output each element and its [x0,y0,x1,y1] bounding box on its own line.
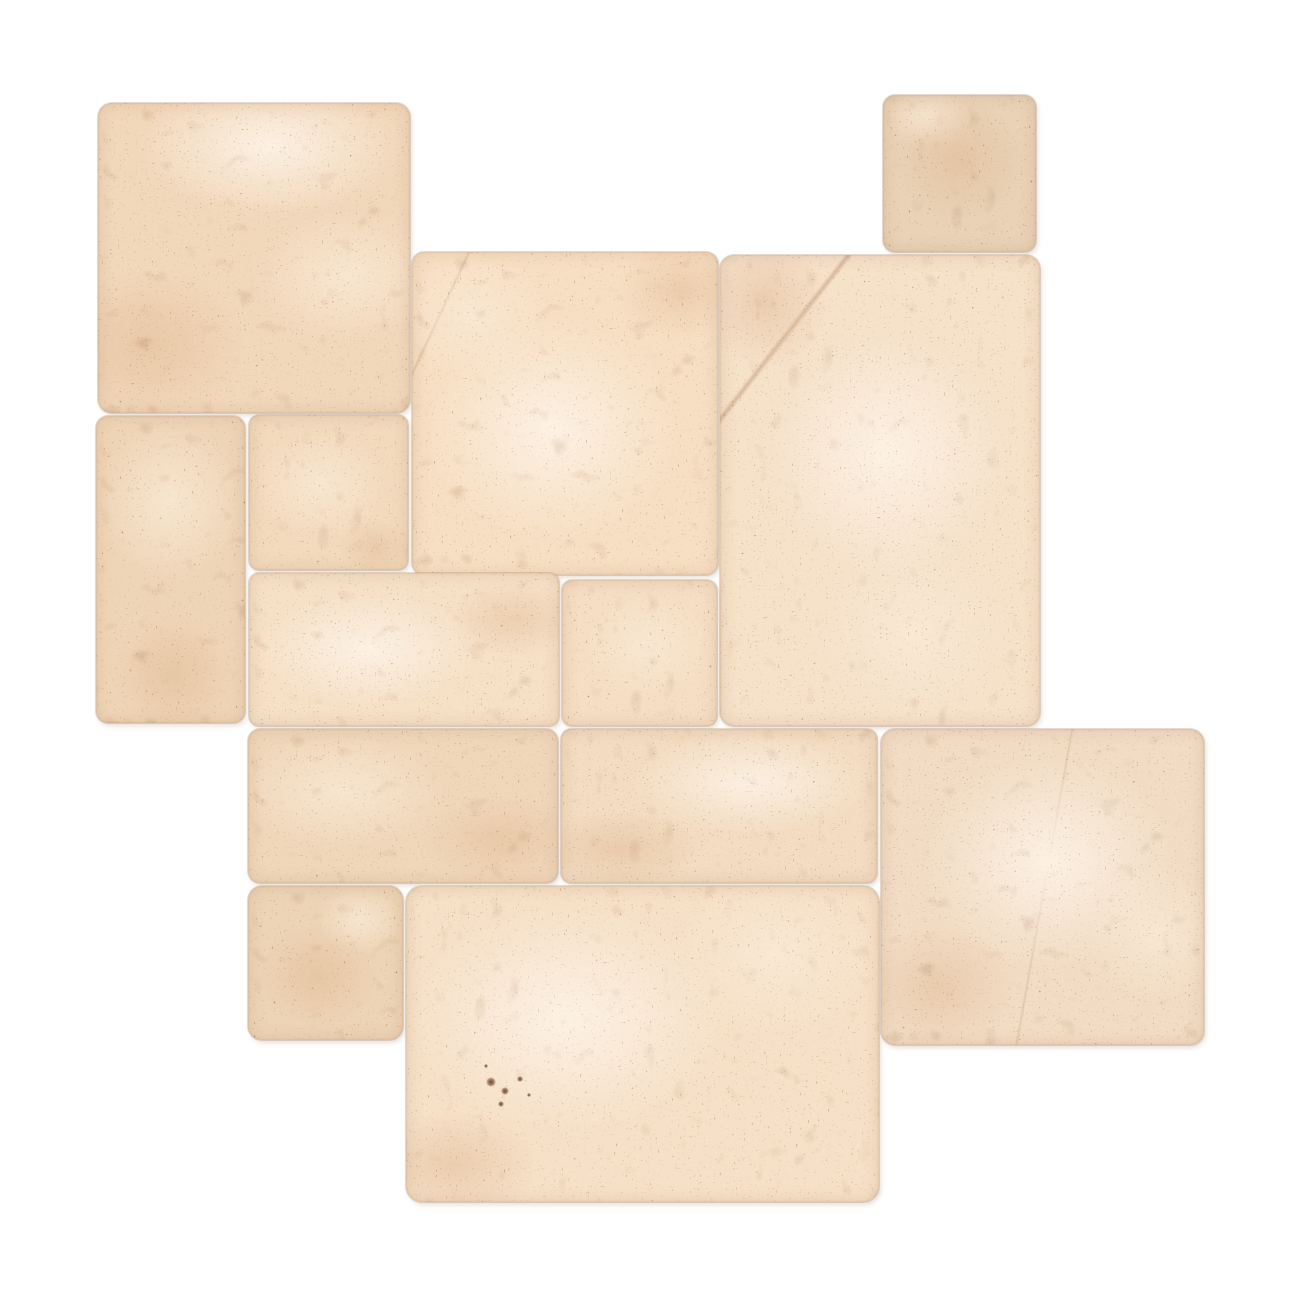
travertine-tile-8x8-center [562,580,717,726]
stone-grain-texture [248,886,403,1040]
stone-grain-texture [561,729,877,883]
travertine-tile-16x8-middle [249,573,559,726]
travertine-tile-8x8-top-right [883,95,1036,252]
travertine-tile-24x16-bottom [406,886,879,1202]
stone-pit [501,1087,509,1095]
stone-grain-texture [96,416,245,723]
stone-grain-texture [248,729,558,883]
tile-pattern-canvas [0,0,1300,1300]
stone-grain-texture [881,729,1204,1045]
travertine-tile-8x16-left [96,416,245,723]
stone-grain-texture [720,255,1040,726]
travertine-tile-16x8-lower-middle [561,729,877,883]
stone-grain-texture [883,95,1036,252]
stone-grain-texture [98,103,410,413]
travertine-tile-16x24-right [720,255,1040,726]
stone-pit [484,1064,488,1068]
travertine-tile-16x8-lower-left [248,729,558,883]
travertine-tile-16x16-top-left [98,103,410,413]
stone-grain-texture [406,886,879,1202]
travertine-tile-16x16-bottom-right [881,729,1204,1045]
travertine-tile-16x16-center [412,252,718,575]
stone-grain-texture [249,415,408,570]
travertine-tile-8x8-bottom-left [248,886,403,1040]
travertine-tile-8x8-mid-left [249,415,408,570]
stone-pit [517,1076,523,1082]
stone-grain-texture [249,573,559,726]
stone-grain-texture [412,252,718,575]
stone-grain-texture [562,580,717,726]
stone-pit [486,1077,496,1087]
stone-pit [527,1093,531,1097]
stone-pit [498,1101,504,1107]
